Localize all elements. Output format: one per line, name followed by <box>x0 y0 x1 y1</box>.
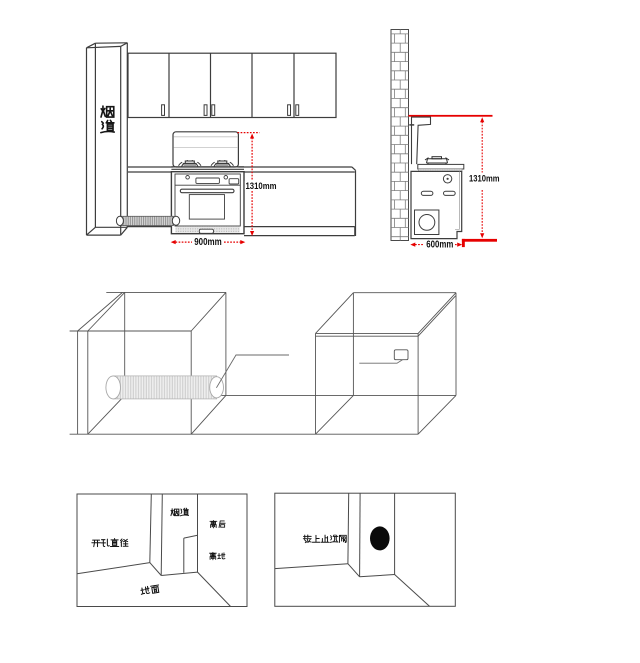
svg-text:600mm: 600mm <box>426 240 453 251</box>
svg-text:1310mm: 1310mm <box>469 173 500 183</box>
svg-text:900mm: 900mm <box>194 237 222 248</box>
svg-text:1310mm: 1310mm <box>246 181 277 191</box>
